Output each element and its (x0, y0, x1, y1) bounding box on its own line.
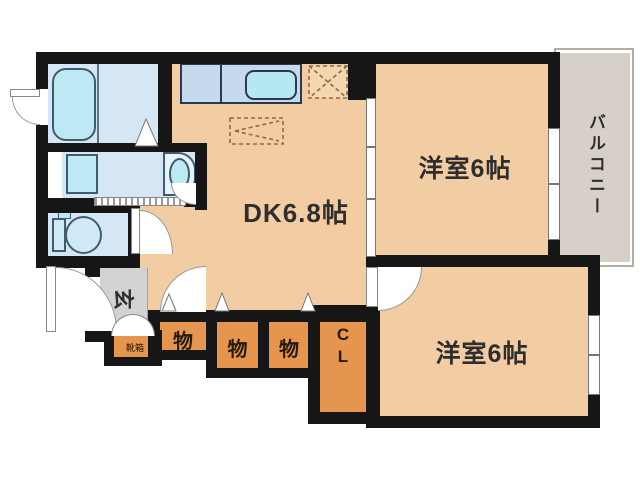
wall (36, 143, 207, 152)
wall (308, 305, 320, 424)
sliding-door-tick (366, 146, 376, 148)
dk-floor (172, 103, 372, 148)
closet-label-line2: L (338, 347, 348, 366)
bathtub-icon (52, 68, 96, 141)
washing-machine-icon (66, 154, 98, 194)
wall (217, 368, 320, 378)
sliding-door (366, 98, 376, 257)
closet-label-line1: C (337, 325, 349, 344)
counter-divider (220, 63, 222, 104)
wall (366, 255, 600, 267)
wall (36, 52, 560, 64)
entrance-label: 玄 (109, 281, 139, 317)
wall (366, 416, 600, 428)
wall (36, 52, 48, 89)
closet-label: C L (320, 324, 366, 368)
bedroom-top-label: 洋室6帖 (385, 149, 545, 185)
wall (348, 52, 376, 100)
toilet-tank (52, 218, 66, 252)
accordion-door (94, 197, 186, 206)
exterior-door-arc (12, 97, 40, 125)
toilet-bowl-icon (65, 216, 102, 254)
toilet-door-leaf (131, 208, 140, 254)
wall (548, 52, 560, 128)
bath-partition (97, 64, 99, 145)
storage-2-label: 物 (217, 333, 258, 362)
dk-label: DK6.8帖 (216, 193, 376, 230)
shoebox-label: 靴箱 (114, 341, 156, 354)
storage-3-label: 物 (269, 333, 309, 362)
window-tick (588, 354, 600, 356)
floor-plan: DK6.8帖 洋室6帖 洋室6帖 バルコニー 玄 靴箱 物 物 物 C L (0, 0, 640, 480)
exterior-door-leaf (10, 89, 40, 97)
storage-1-label: 物 (160, 325, 206, 354)
kitchen-sink-icon (245, 70, 297, 100)
window-tick (548, 183, 560, 185)
wall (206, 310, 217, 378)
wall (548, 240, 560, 262)
bedroom-bottom-label: 洋室6帖 (402, 334, 562, 370)
wall (588, 255, 600, 315)
entrance-door-leaf (46, 266, 56, 332)
bedroom-door-leaf (366, 267, 378, 307)
wall (158, 52, 172, 152)
balcony-label: バルコニー (578, 98, 608, 233)
wall (366, 305, 380, 424)
